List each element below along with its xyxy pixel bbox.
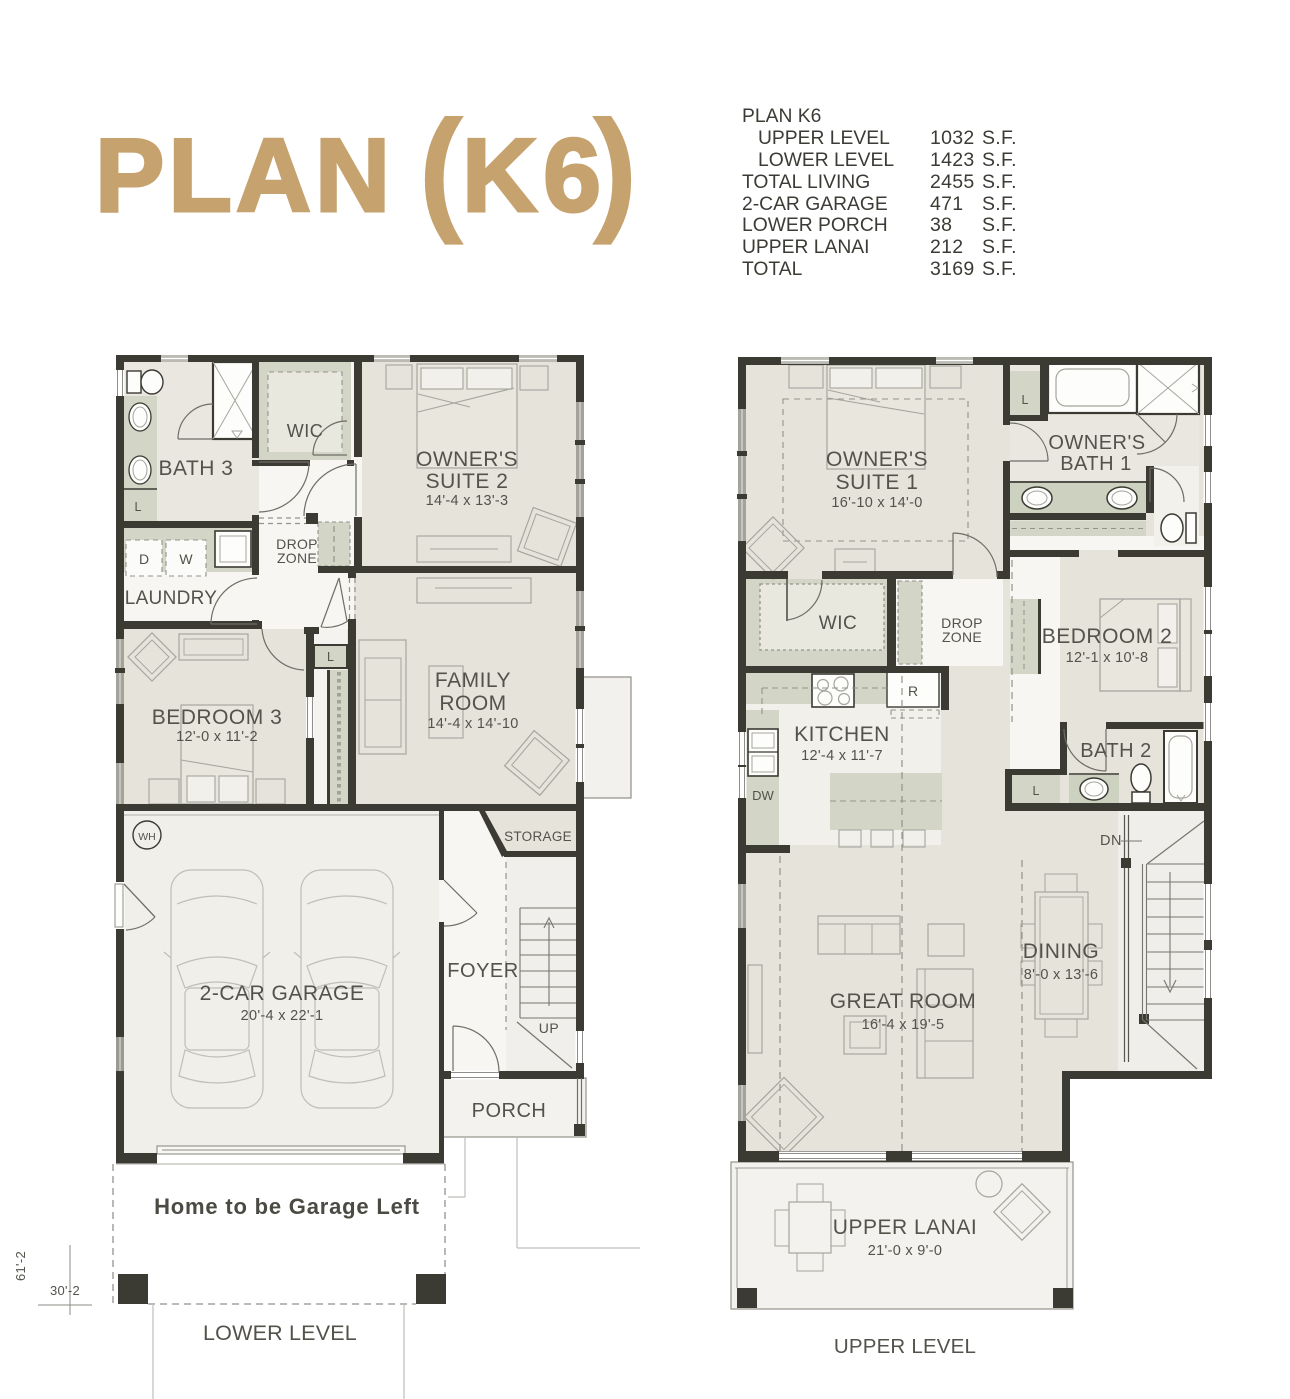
svg-text:K6: K6 (462, 118, 607, 234)
svg-text:S.F.: S.F. (982, 193, 1017, 215)
svg-text:FAMILY: FAMILY (435, 669, 511, 692)
svg-text:16'-10 x 14'-0: 16'-10 x 14'-0 (831, 495, 922, 511)
svg-text:ZONE: ZONE (942, 629, 982, 645)
svg-text:61'-2: 61'-2 (13, 1251, 28, 1281)
svg-text:R: R (908, 683, 918, 699)
svg-text:): ) (592, 92, 638, 246)
svg-text:212: 212 (930, 236, 963, 258)
svg-text:Home to be Garage Left: Home to be Garage Left (154, 1194, 420, 1219)
svg-text:DN: DN (1100, 833, 1122, 849)
svg-text:BEDROOM 3: BEDROOM 3 (152, 706, 283, 729)
svg-text:PORCH: PORCH (472, 1100, 547, 1122)
svg-text:S.F.: S.F. (982, 127, 1017, 149)
svg-text:BATH 1: BATH 1 (1060, 453, 1132, 475)
svg-text:ZONE: ZONE (277, 550, 317, 566)
svg-text:2455: 2455 (930, 171, 975, 193)
svg-text:12'-4 x 11'-7: 12'-4 x 11'-7 (801, 748, 883, 764)
svg-text:LOWER LEVEL: LOWER LEVEL (203, 1321, 357, 1345)
svg-text:TOTAL LIVING: TOTAL LIVING (742, 172, 870, 193)
svg-text:UPPER LANAI: UPPER LANAI (833, 1216, 977, 1239)
svg-text:FOYER: FOYER (447, 960, 518, 982)
svg-text:UP: UP (539, 1020, 559, 1036)
svg-text:STORAGE: STORAGE (504, 829, 572, 844)
svg-text:KITCHEN: KITCHEN (794, 723, 890, 746)
svg-text:21'-0 x 9'-0: 21'-0 x 9'-0 (868, 1243, 942, 1259)
svg-text:UPPER LEVEL: UPPER LEVEL (758, 128, 890, 149)
svg-text:GREAT ROOM: GREAT ROOM (830, 990, 977, 1013)
svg-text:LOWER LEVEL: LOWER LEVEL (758, 150, 894, 171)
svg-text:LOWER PORCH: LOWER PORCH (742, 215, 888, 236)
svg-text:8'-0 x 13'-6: 8'-0 x 13'-6 (1024, 967, 1098, 983)
svg-text:PLAN K6: PLAN K6 (742, 106, 821, 127)
svg-text:20'-4 x 22'-1: 20'-4 x 22'-1 (241, 1008, 324, 1024)
svg-text:14'-4 x 13'-3: 14'-4 x 13'-3 (426, 493, 509, 509)
svg-text:471: 471 (930, 193, 963, 215)
svg-text:UPPER LEVEL: UPPER LEVEL (834, 1335, 976, 1358)
svg-text:16'-4 x 19'-5: 16'-4 x 19'-5 (862, 1017, 945, 1033)
svg-text:TOTAL: TOTAL (742, 259, 803, 280)
svg-text:38: 38 (930, 214, 952, 236)
svg-text:UPPER LANAI: UPPER LANAI (742, 237, 870, 258)
svg-text:BATH 2: BATH 2 (1080, 740, 1152, 762)
svg-text:S.F.: S.F. (982, 171, 1017, 193)
svg-text:12'-1 x 10'-8: 12'-1 x 10'-8 (1066, 650, 1149, 666)
svg-text:WH: WH (138, 831, 156, 843)
svg-text:(: ( (418, 92, 464, 246)
svg-text:LAUNDRY: LAUNDRY (125, 588, 218, 609)
svg-text:BATH 3: BATH 3 (159, 457, 234, 480)
svg-text:WIC: WIC (287, 421, 324, 441)
svg-text:1423: 1423 (930, 149, 975, 171)
svg-text:S.F.: S.F. (982, 236, 1017, 258)
svg-text:L: L (1033, 784, 1040, 798)
svg-text:30'-2: 30'-2 (50, 1283, 80, 1298)
svg-text:2-CAR GARAGE: 2-CAR GARAGE (742, 194, 888, 215)
svg-text:DW: DW (752, 788, 774, 803)
svg-text:3169: 3169 (930, 258, 975, 280)
svg-text:S.F.: S.F. (982, 149, 1017, 171)
svg-text:L: L (1022, 393, 1029, 407)
svg-text:W: W (179, 551, 193, 567)
svg-text:SUITE 1: SUITE 1 (836, 471, 919, 494)
svg-text:S.F.: S.F. (982, 214, 1017, 236)
svg-text:WIC: WIC (819, 613, 857, 634)
svg-text:OWNER'S: OWNER'S (1048, 432, 1145, 454)
svg-text:2-CAR GARAGE: 2-CAR GARAGE (200, 982, 365, 1005)
svg-text:L: L (135, 500, 142, 514)
svg-text:D: D (139, 551, 149, 567)
svg-text:14'-4 x 14'-10: 14'-4 x 14'-10 (427, 716, 518, 732)
svg-text:12'-0 x 11'-2: 12'-0 x 11'-2 (176, 729, 258, 745)
svg-text:1032: 1032 (930, 127, 975, 149)
svg-text:SUITE 2: SUITE 2 (426, 470, 509, 493)
svg-text:ROOM: ROOM (439, 692, 506, 715)
svg-text:L: L (327, 650, 334, 664)
svg-text:DINING: DINING (1023, 940, 1100, 963)
svg-text:OWNER'S: OWNER'S (416, 448, 518, 471)
svg-text:BEDROOM 2: BEDROOM 2 (1042, 625, 1173, 648)
svg-text:S.F.: S.F. (982, 258, 1017, 280)
svg-text:PLAN: PLAN (95, 118, 394, 234)
svg-text:OWNER'S: OWNER'S (826, 448, 928, 471)
